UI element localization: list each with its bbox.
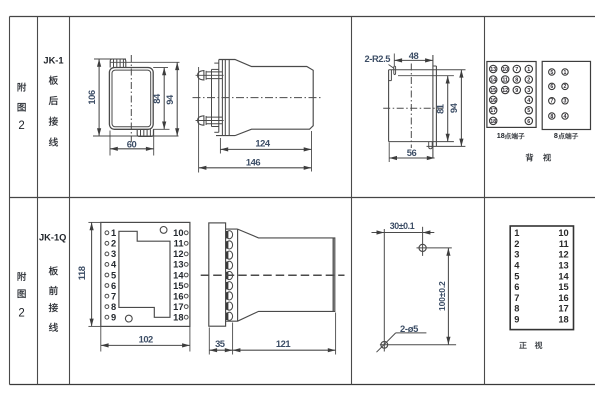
svg-text:13: 13 <box>173 260 183 270</box>
svg-text:15: 15 <box>558 282 568 292</box>
svg-text:7: 7 <box>550 99 553 105</box>
svg-text:2-R2.5: 2-R2.5 <box>365 54 391 64</box>
svg-text:18: 18 <box>497 131 505 140</box>
svg-text:100±0.2: 100±0.2 <box>437 281 447 311</box>
svg-text:81: 81 <box>434 104 445 114</box>
svg-text:4: 4 <box>111 260 117 270</box>
svg-text:18: 18 <box>173 313 183 323</box>
svg-text:14: 14 <box>490 77 496 83</box>
svg-text:121: 121 <box>276 338 290 349</box>
svg-text:8: 8 <box>514 304 519 314</box>
svg-text:2: 2 <box>527 77 530 83</box>
svg-text:5: 5 <box>514 271 519 281</box>
svg-text:17: 17 <box>490 108 496 114</box>
svg-text:12: 12 <box>558 250 568 260</box>
svg-text:11: 11 <box>559 239 569 249</box>
svg-text:JK-1: JK-1 <box>43 56 63 66</box>
svg-text:2: 2 <box>514 239 519 249</box>
svg-text:1: 1 <box>527 67 530 73</box>
svg-text:15: 15 <box>173 281 183 291</box>
svg-text:4: 4 <box>564 114 567 120</box>
svg-text:11: 11 <box>174 239 184 249</box>
svg-text:JK-1Q: JK-1Q <box>39 233 66 243</box>
svg-text:13: 13 <box>558 261 568 271</box>
svg-text:5: 5 <box>527 108 530 114</box>
svg-text:14: 14 <box>173 270 184 280</box>
svg-text:9: 9 <box>515 88 518 94</box>
svg-text:16: 16 <box>173 291 183 301</box>
svg-text:10: 10 <box>558 228 568 238</box>
svg-text:30±0.1: 30±0.1 <box>390 221 415 231</box>
svg-text:13: 13 <box>490 67 496 73</box>
svg-text:106: 106 <box>86 90 97 104</box>
svg-text:17: 17 <box>173 302 183 312</box>
svg-text:8: 8 <box>111 302 116 312</box>
svg-text:8: 8 <box>515 77 518 83</box>
svg-text:17: 17 <box>558 304 568 314</box>
svg-text:11: 11 <box>502 77 508 83</box>
svg-text:6: 6 <box>514 282 519 292</box>
svg-text:3: 3 <box>527 88 530 94</box>
svg-text:2: 2 <box>564 84 567 90</box>
svg-text:16: 16 <box>558 293 568 303</box>
svg-text:146: 146 <box>246 157 260 168</box>
svg-text:94: 94 <box>448 102 459 113</box>
svg-text:8: 8 <box>550 114 553 120</box>
svg-text:3: 3 <box>564 99 567 105</box>
svg-text:10: 10 <box>173 228 183 238</box>
svg-text:6: 6 <box>527 119 530 125</box>
svg-text:8: 8 <box>554 131 558 140</box>
svg-text:6: 6 <box>550 84 553 90</box>
svg-text:7: 7 <box>514 293 519 303</box>
svg-text:18: 18 <box>558 315 568 325</box>
svg-text:2: 2 <box>18 308 24 320</box>
svg-text:6: 6 <box>111 281 116 291</box>
svg-text:14: 14 <box>558 271 569 281</box>
svg-text:16: 16 <box>490 98 496 104</box>
svg-text:5: 5 <box>550 70 553 76</box>
svg-text:7: 7 <box>111 291 116 301</box>
svg-text:12: 12 <box>502 88 508 94</box>
svg-text:18: 18 <box>490 119 496 125</box>
svg-text:2: 2 <box>18 120 24 132</box>
svg-text:3: 3 <box>111 249 116 259</box>
svg-text:35: 35 <box>215 338 225 349</box>
svg-text:2: 2 <box>111 239 116 249</box>
svg-text:1: 1 <box>564 70 567 76</box>
svg-text:9: 9 <box>514 315 519 325</box>
svg-text:15: 15 <box>490 88 496 94</box>
svg-text:1: 1 <box>111 228 116 238</box>
svg-text:56: 56 <box>407 147 417 158</box>
svg-text:3: 3 <box>514 250 519 260</box>
svg-text:60: 60 <box>127 138 137 149</box>
svg-text:84: 84 <box>151 93 162 104</box>
svg-text:102: 102 <box>139 333 153 344</box>
svg-text:124: 124 <box>255 138 270 149</box>
svg-text:48: 48 <box>409 50 419 61</box>
svg-text:2-ø5: 2-ø5 <box>400 323 418 334</box>
svg-text:118: 118 <box>76 266 87 280</box>
svg-text:7: 7 <box>515 67 518 73</box>
svg-text:4: 4 <box>514 261 520 271</box>
svg-text:94: 94 <box>164 94 175 105</box>
svg-text:4: 4 <box>527 98 530 104</box>
svg-text:9: 9 <box>111 313 116 323</box>
svg-text:10: 10 <box>502 67 508 73</box>
svg-text:1: 1 <box>514 228 519 238</box>
svg-text:12: 12 <box>173 249 183 259</box>
svg-text:5: 5 <box>111 270 116 280</box>
